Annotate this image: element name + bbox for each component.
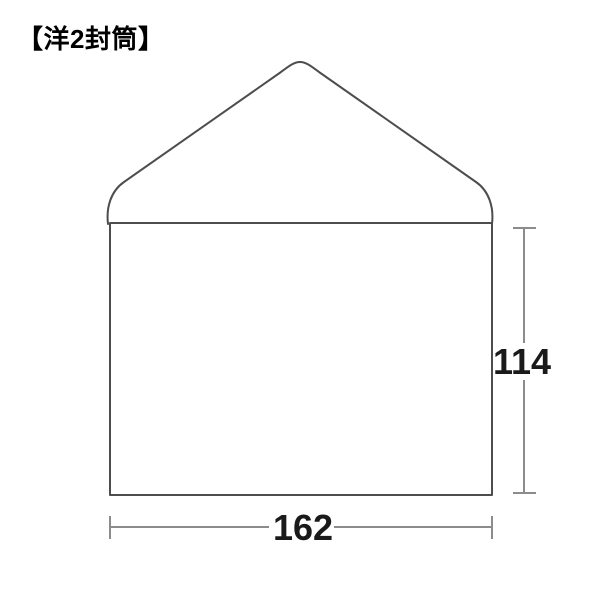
width-dimension: 162 [110,507,492,548]
envelope-body-outline [110,223,492,495]
height-label: 114 [493,341,551,382]
envelope-flap-outline [108,62,493,224]
envelope-outline [108,62,493,495]
width-label: 162 [273,507,333,548]
envelope-diagram-page: 【洋2封筒】 114 162 [0,0,600,600]
height-dimension: 114 [493,228,551,493]
envelope-diagram: 114 162 [0,0,600,600]
